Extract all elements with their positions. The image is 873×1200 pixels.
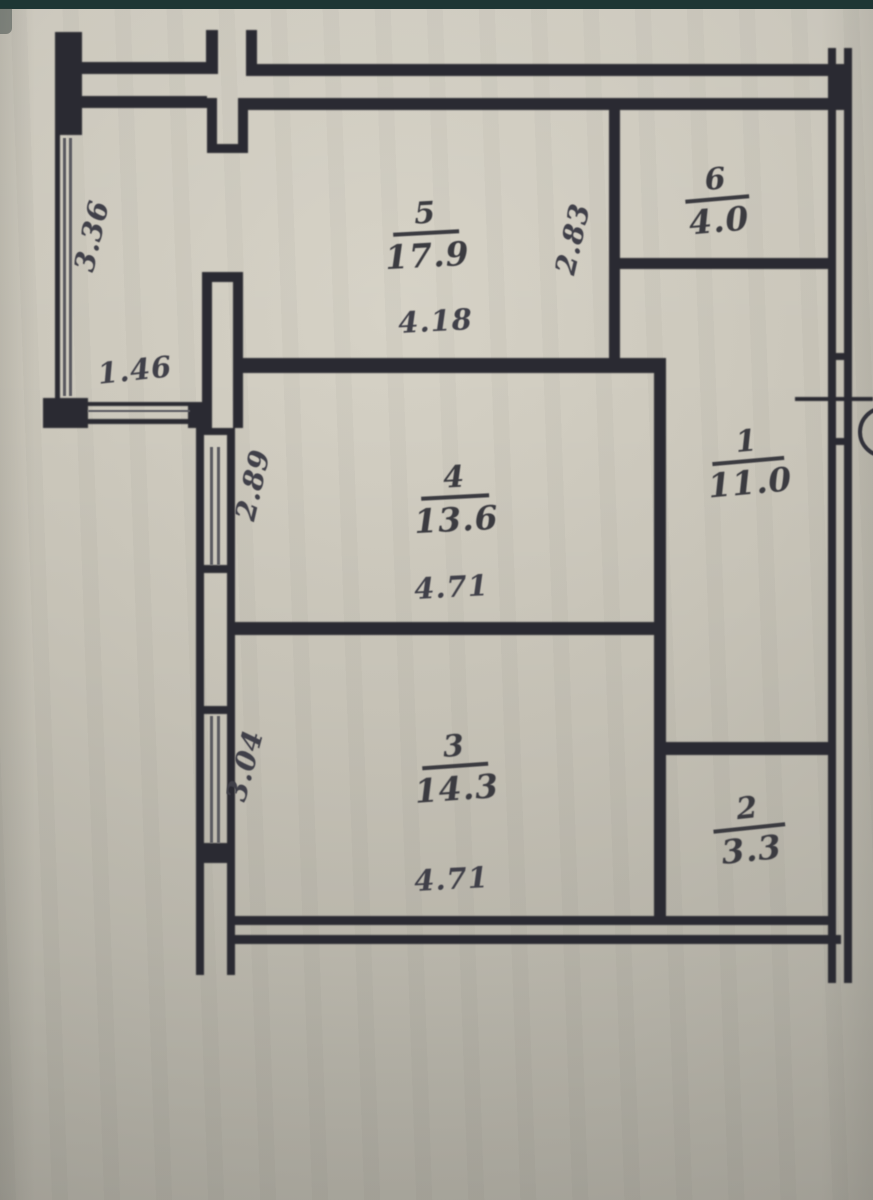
room6-label: 6 4.0 bbox=[682, 159, 753, 242]
dim-balcony-height: 3.36 bbox=[68, 197, 116, 275]
balcony-left-window-glazing bbox=[63, 138, 66, 396]
room1-left-wall bbox=[654, 358, 666, 920]
top-wall-upper-left bbox=[74, 62, 213, 74]
room5-area: 17.9 bbox=[384, 234, 470, 277]
left-wall-outer-line bbox=[196, 428, 204, 975]
balcony-window-top-line bbox=[88, 402, 190, 406]
room6-bottom-wall bbox=[613, 258, 836, 269]
room4-room3-divider bbox=[227, 622, 666, 635]
room6-left-wall bbox=[609, 110, 620, 362]
room1-number: 1 bbox=[734, 423, 759, 460]
dim-room4-height: 2.89 bbox=[228, 446, 277, 525]
room2-number: 2 bbox=[734, 790, 760, 827]
left-wall-tick-2 bbox=[196, 565, 235, 573]
room4-number: 4 bbox=[442, 459, 466, 495]
balcony-right-wall-left-line bbox=[202, 272, 212, 428]
left-wall-tick-3 bbox=[196, 706, 235, 714]
top-wall-lower-left bbox=[67, 96, 207, 108]
top-wall-lower-right bbox=[248, 98, 852, 110]
balcony-left-wall-edge bbox=[55, 135, 60, 402]
room6-number: 6 bbox=[703, 161, 728, 198]
room3-area: 14.3 bbox=[413, 766, 500, 811]
dim-balcony-width: 1.46 bbox=[96, 349, 174, 391]
room5-label: 5 17.9 bbox=[382, 194, 470, 277]
room5-bottom-wall bbox=[240, 358, 666, 373]
room6-area: 4.0 bbox=[687, 198, 751, 242]
bottom-wall-lower-line bbox=[231, 935, 841, 944]
room1-area: 11.0 bbox=[706, 459, 793, 505]
dim-room5-height: 2.83 bbox=[548, 200, 597, 279]
room5-number: 5 bbox=[413, 195, 437, 231]
top-pier-bottom bbox=[207, 144, 248, 153]
room2-top-wall bbox=[666, 742, 836, 755]
room2-area: 3.3 bbox=[719, 827, 783, 872]
right-wall-tick-1 bbox=[830, 353, 850, 360]
balcony-right-wall-right-line bbox=[233, 272, 243, 428]
balcony-bottom-window-glazing bbox=[88, 410, 190, 412]
dimension-texts: 3.36 1.46 4.18 2.83 2.89 4.71 3.04 4.71 bbox=[68, 197, 597, 898]
top-wall-upper-right bbox=[246, 64, 852, 76]
balcony-corner-block bbox=[43, 398, 88, 428]
room3-window-glazing bbox=[210, 716, 213, 843]
floor-plan-drawing: 5 17.9 6 4.0 4 13.6 1 11.0 3 bbox=[0, 0, 873, 1200]
right-wall-opening-line bbox=[795, 397, 873, 401]
room4-label: 4 13.6 bbox=[411, 458, 499, 541]
room4-window-glazing-2 bbox=[217, 447, 220, 565]
dim-room5-width: 4.18 bbox=[397, 302, 473, 340]
dim-room3-width: 4.71 bbox=[413, 860, 489, 898]
right-wall-outer-line bbox=[844, 48, 852, 983]
right-wall-tick-2 bbox=[830, 438, 850, 445]
bottom-wall-upper-line bbox=[231, 916, 836, 925]
scanned-floorplan-page: 5 17.9 6 4.0 4 13.6 1 11.0 3 bbox=[0, 0, 873, 1200]
balcony-left-wall-top bbox=[55, 32, 82, 135]
right-wall-top-joint bbox=[828, 66, 852, 110]
room3-number: 3 bbox=[442, 728, 466, 764]
room2-label: 2 3.3 bbox=[710, 787, 790, 872]
room3-label: 3 14.3 bbox=[411, 726, 501, 811]
right-wall-inner-line bbox=[828, 48, 836, 983]
door-swing-circle bbox=[860, 408, 873, 456]
room1-label: 1 11.0 bbox=[703, 420, 794, 505]
room3-window-glazing-2 bbox=[217, 716, 220, 843]
room4-area: 13.6 bbox=[413, 498, 499, 541]
room4-window-glazing bbox=[210, 447, 213, 565]
top-wall-jamb-left bbox=[206, 30, 218, 74]
dim-room4-width: 4.71 bbox=[413, 568, 489, 606]
left-wall-solid-block bbox=[196, 843, 235, 863]
balcony-window-bottom-line bbox=[88, 419, 190, 424]
left-wall-tick-1 bbox=[196, 428, 235, 435]
